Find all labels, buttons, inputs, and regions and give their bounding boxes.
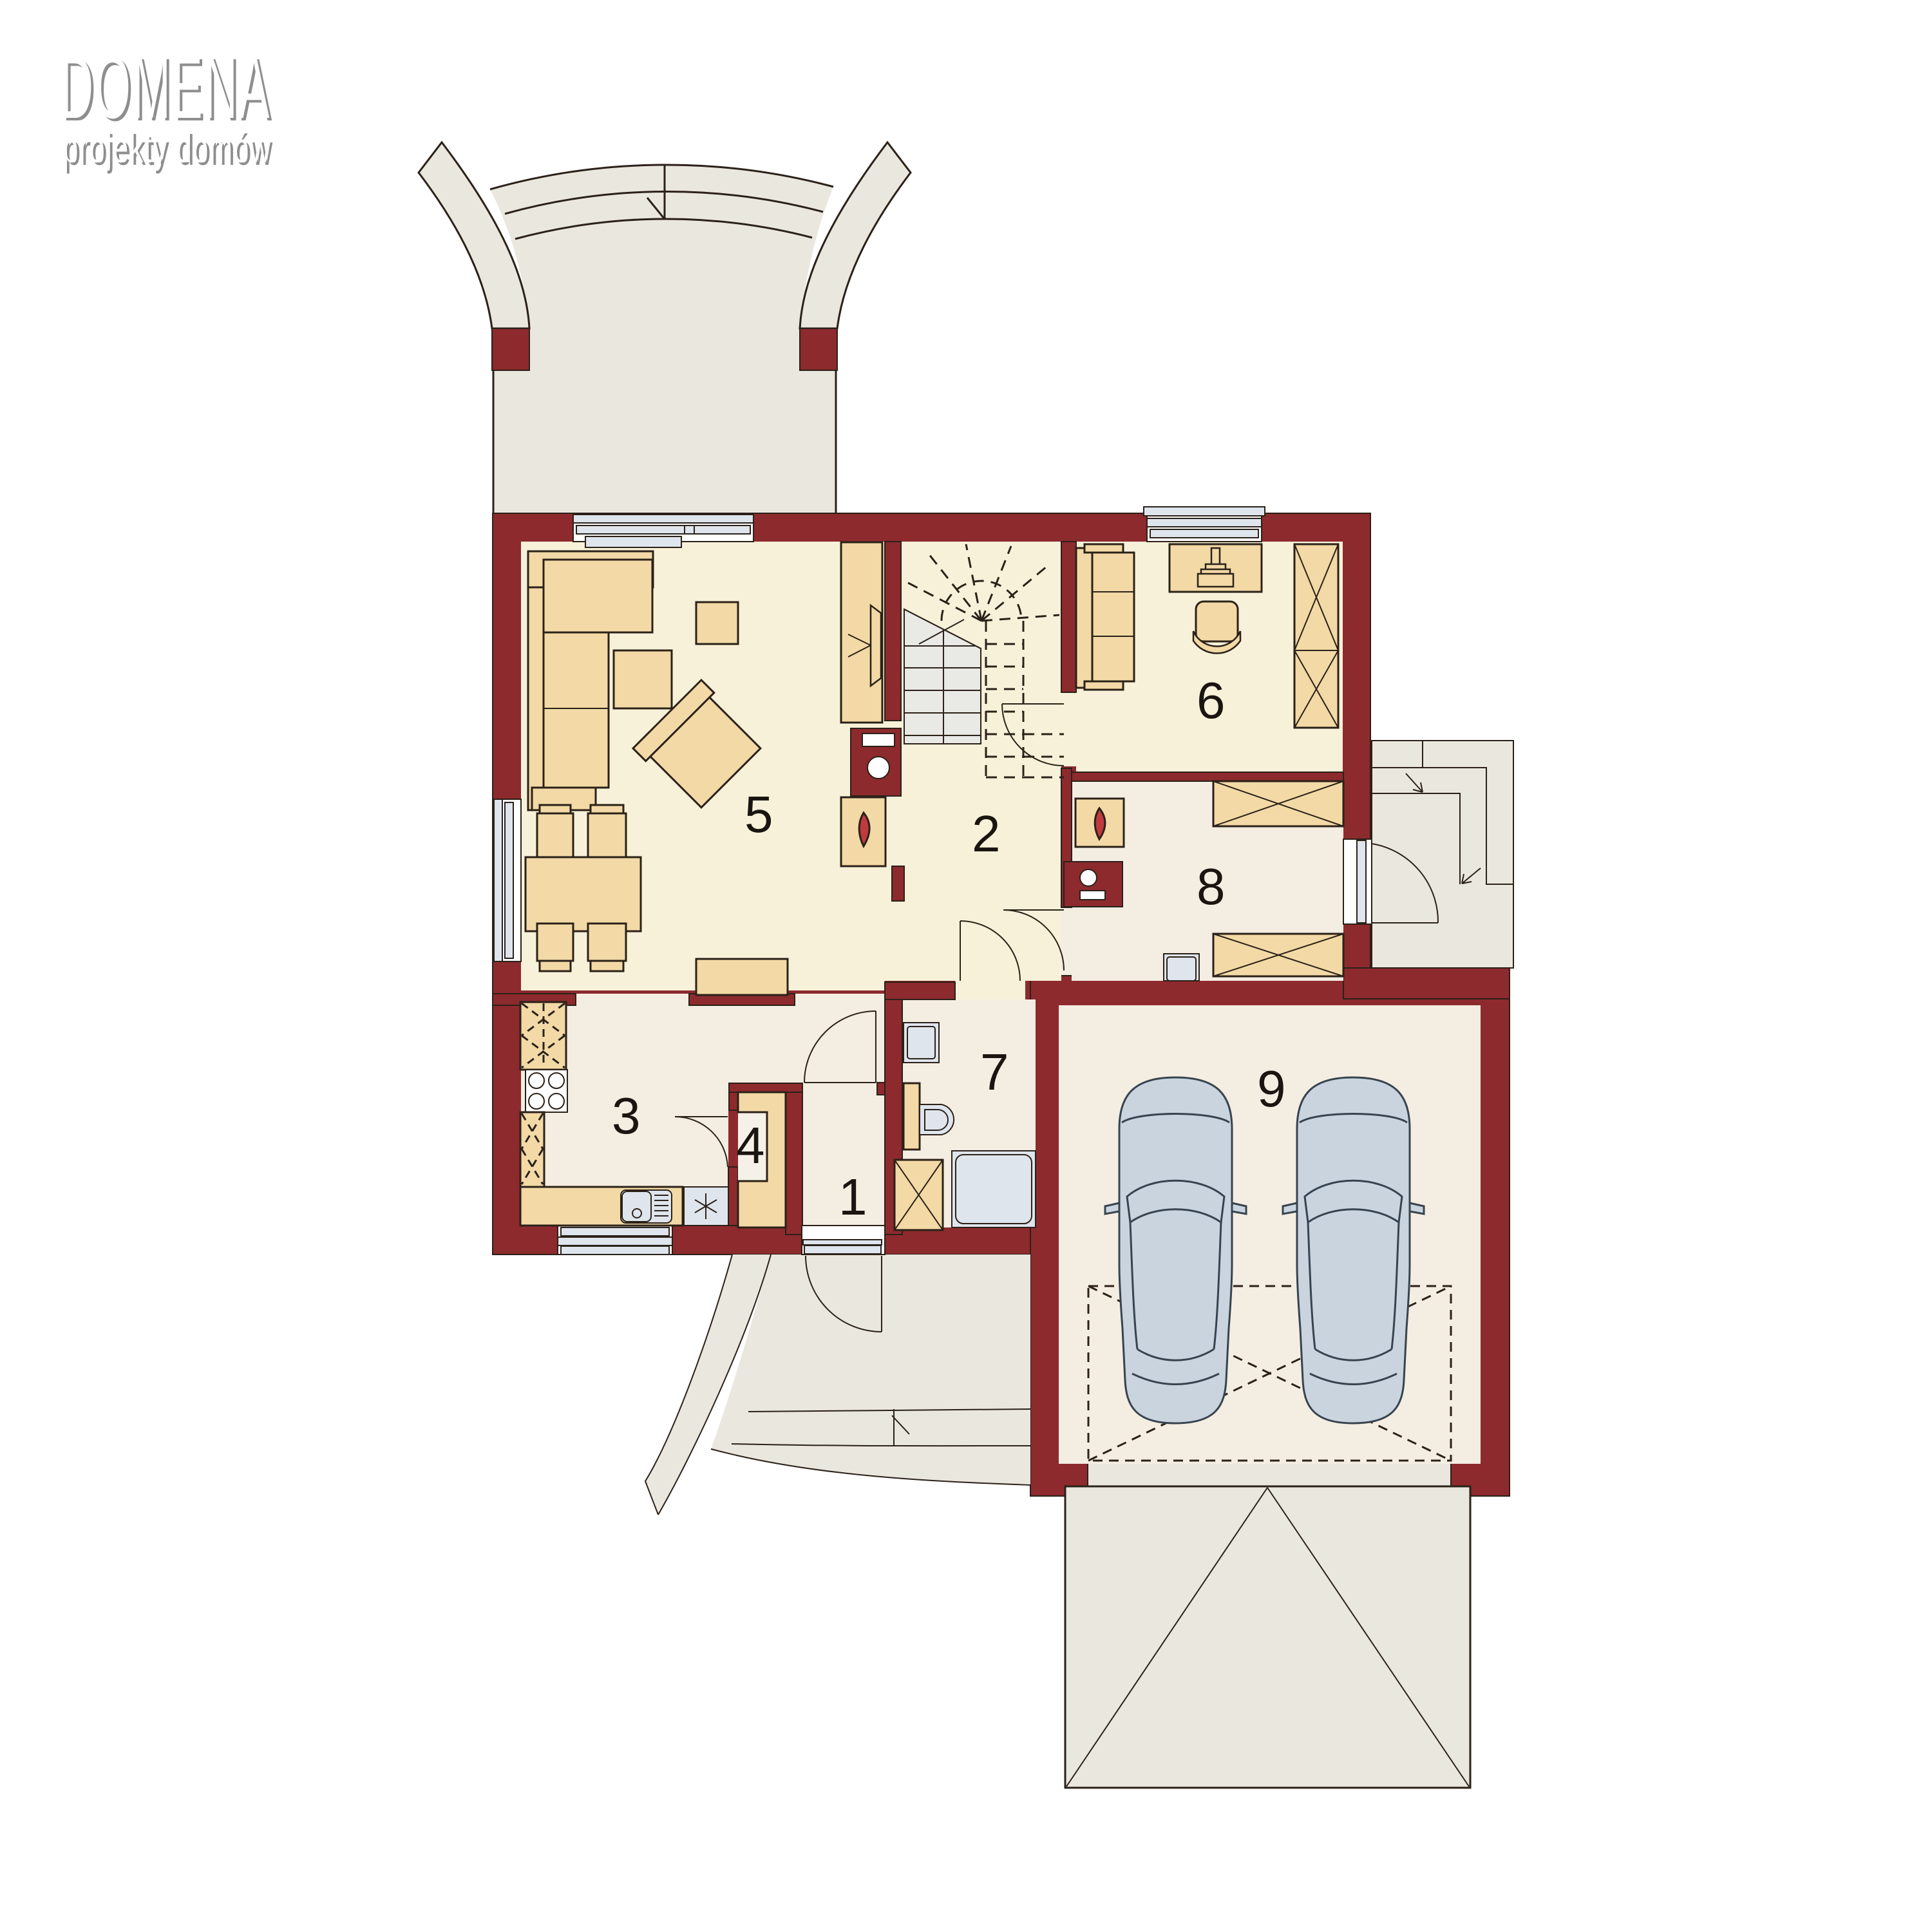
svg-text:3: 3 (612, 1087, 641, 1144)
svg-text:6: 6 (1197, 672, 1226, 729)
svg-text:5: 5 (744, 786, 773, 843)
svg-text:8: 8 (1197, 858, 1226, 915)
svg-text:DOMENA: DOMENA (60, 38, 270, 137)
svg-text:9: 9 (1257, 1060, 1286, 1117)
svg-text:1: 1 (838, 1168, 867, 1226)
svg-text:7: 7 (980, 1043, 1009, 1101)
svg-text:4: 4 (736, 1117, 765, 1174)
svg-text:2: 2 (972, 805, 1001, 862)
svg-text:projekty domów: projekty domów (62, 124, 270, 171)
